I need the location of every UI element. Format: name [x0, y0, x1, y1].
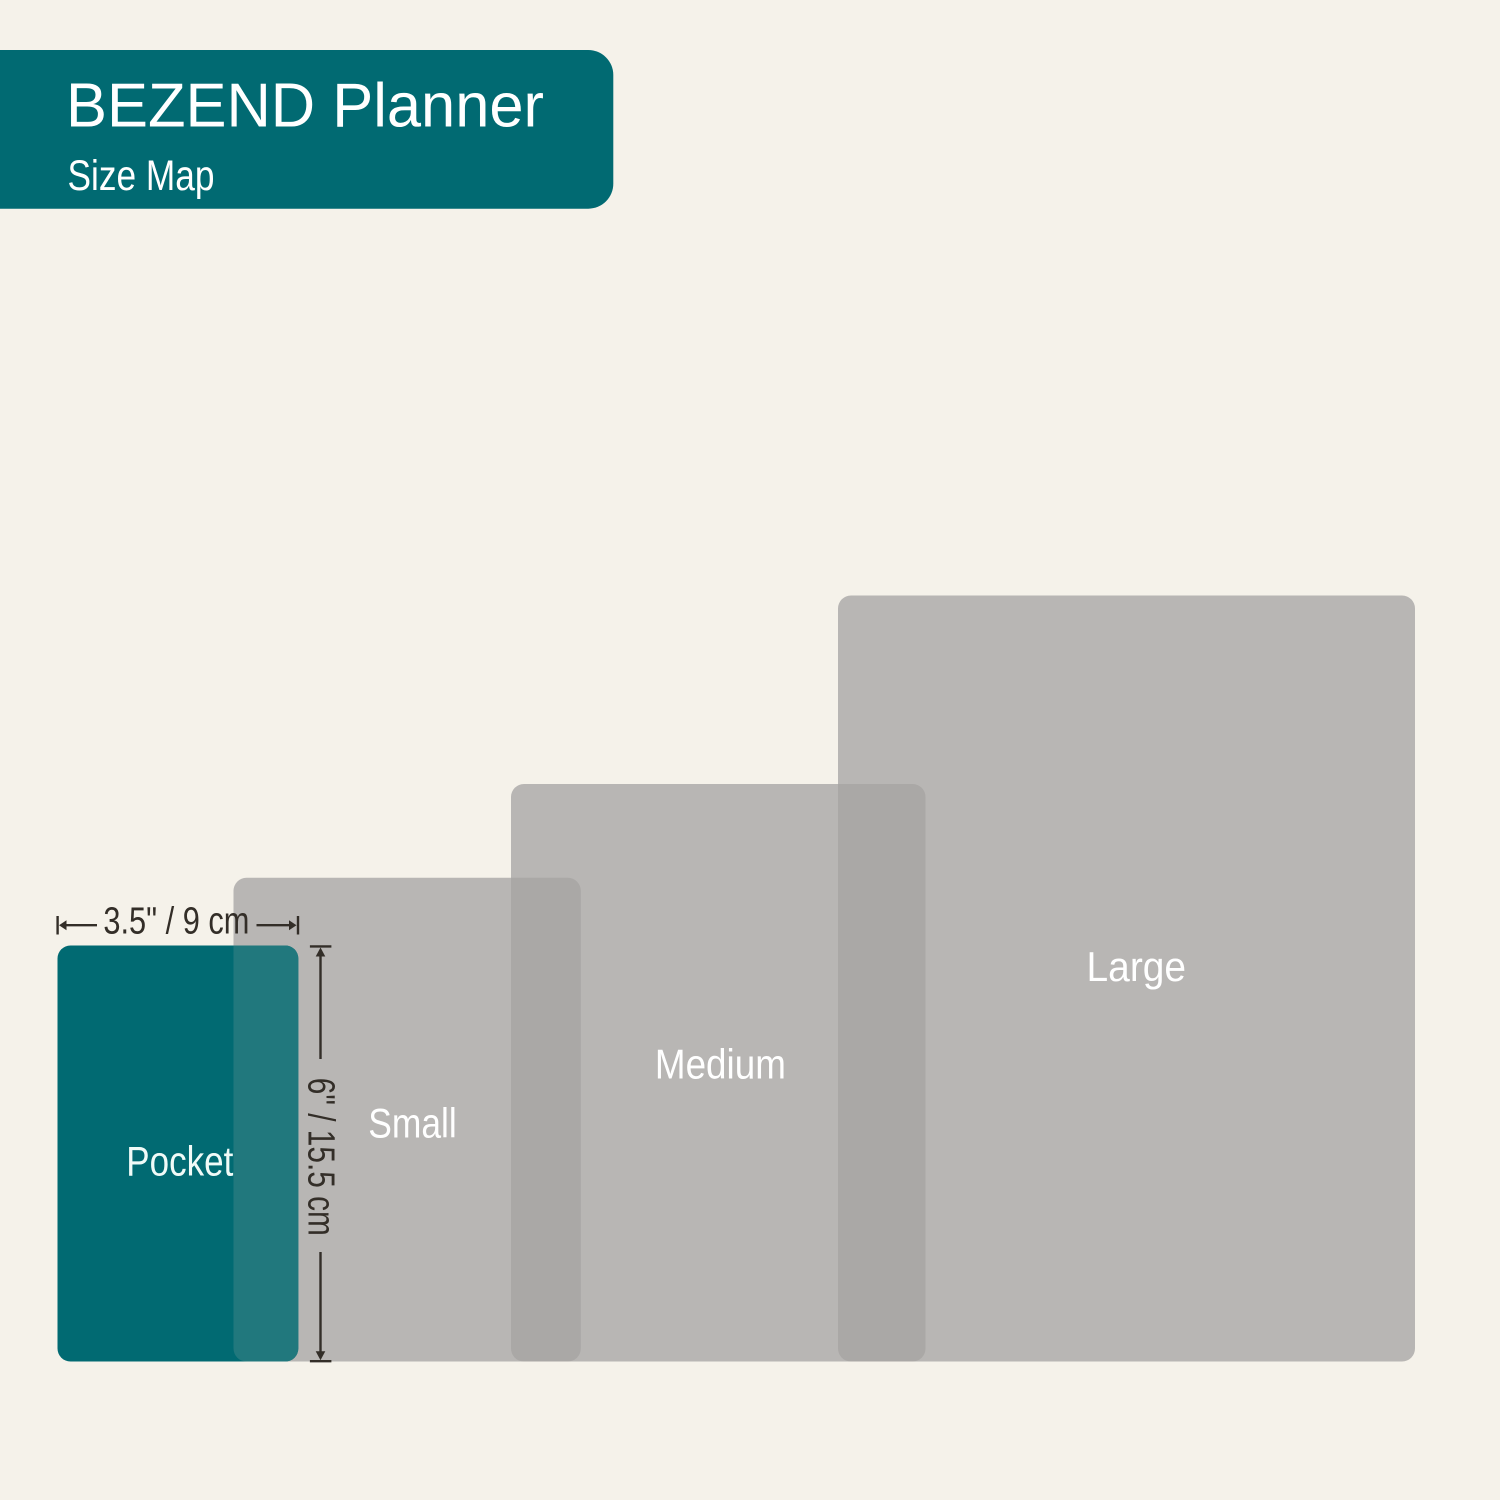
svg-text:6" / 15.5 cm: 6" / 15.5 cm: [300, 1078, 342, 1236]
svg-text:Size Map: Size Map: [68, 152, 215, 200]
svg-text:3.5" / 9 cm: 3.5" / 9 cm: [103, 901, 249, 943]
svg-text:BEZEND Planner: BEZEND Planner: [66, 72, 544, 141]
svg-text:Small: Small: [368, 1099, 457, 1146]
svg-text:Large: Large: [1087, 943, 1187, 990]
svg-text:Medium: Medium: [655, 1040, 786, 1087]
svg-text:Pocket: Pocket: [126, 1138, 233, 1185]
